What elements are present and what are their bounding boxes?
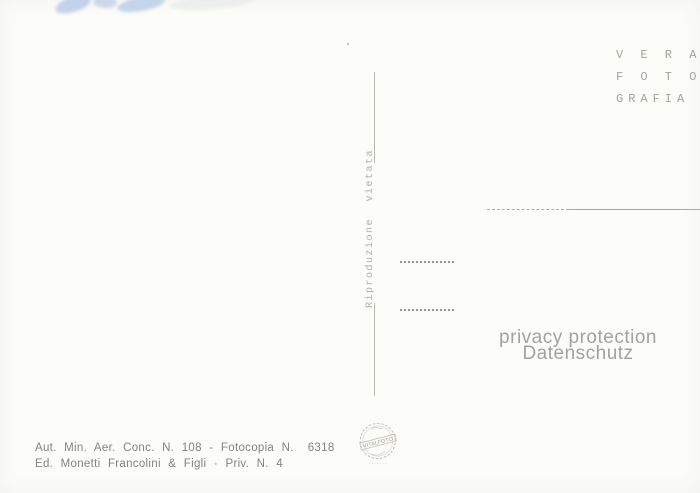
credit-line-1: Aut. Min. Aer. Conc. N. 108 - Fotocopia … [35, 440, 335, 456]
postcard-back: V E R A F O T O GRAFIA Riproduzione viet… [0, 0, 700, 493]
reproduction-notice: Riproduzione vietata [365, 158, 379, 308]
publisher-mark-line-2: F O T O [616, 66, 700, 88]
credit-line-1-number: 6318 [308, 442, 335, 454]
blue-smudge-artifact [54, 0, 93, 16]
address-line-dashed-segment [487, 209, 569, 210]
privacy-watermark-line-2: Datenschutz [478, 346, 678, 361]
address-line-solid-segment [569, 209, 700, 210]
credit-line-1-label: Aut. Min. Aer. Conc. N. 108 - Fotocopia … [35, 442, 294, 454]
blue-smudge-artifact [116, 0, 166, 15]
dotted-line-2 [400, 309, 454, 311]
credit-line-2: Ed. Monetti Francolini & Figli · Priv. N… [35, 456, 335, 472]
publisher-mark-line-1: V E R A [616, 44, 700, 66]
blue-smudge-artifact [92, 0, 117, 10]
faint-smudge-artifact [170, 0, 256, 12]
stamp-subtext: ······· [351, 461, 405, 467]
printing-credits: Aut. Min. Aer. Conc. N. 108 - Fotocopia … [35, 440, 335, 472]
divider-line-lower [374, 303, 375, 396]
publisher-mark-line-3: GRAFIA [616, 88, 700, 110]
privacy-watermark: privacy protection Datenschutz [478, 330, 678, 361]
dust-speck [347, 43, 349, 45]
address-line [487, 209, 700, 210]
publisher-mark: V E R A F O T O GRAFIA [616, 44, 700, 110]
dotted-line-1 [400, 261, 454, 263]
